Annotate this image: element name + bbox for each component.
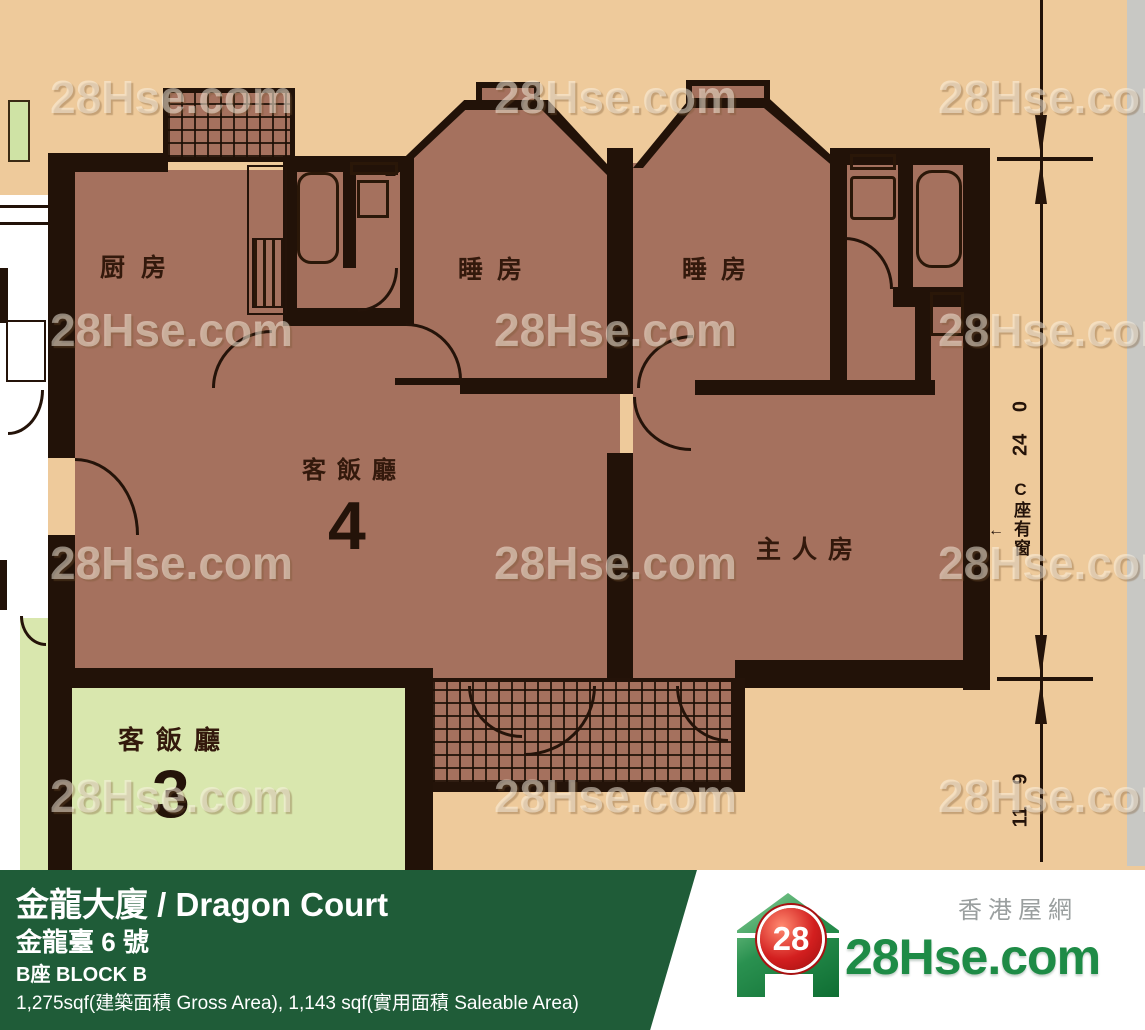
bathtub [297,172,339,264]
dimension-tick [997,157,1093,161]
master-bedroom-label: 主人房 [756,530,864,566]
adjacent-green-notch [20,618,48,870]
toilet [357,180,389,218]
living-dining-label: 客飯廳 [302,450,407,485]
master-bottom-wall [735,660,990,688]
logo-site-name-chinese: 香港屋網 [958,890,1078,925]
right-gray-strip [1127,0,1145,866]
left-outer-wall [48,535,75,690]
green-top-wall [58,668,418,688]
logo-house-door [765,974,813,997]
bedroom-left-label: 睡房 [458,250,536,286]
dimension-arrow [1035,682,1047,724]
lobby-wall-sliver [0,560,7,610]
mid-column [607,148,633,394]
window-note-arrow: ← [988,522,1004,540]
adjacent-green-sliver [8,100,30,162]
green-left-wall [48,690,72,870]
master-lobby-wall [915,307,931,395]
bathroom2-divider [898,150,913,292]
kitchen-label: 厨房 [100,248,182,284]
floorplan-page: 厨房 睡房 睡房 客飯廳 4 主人房 客飯廳 3 24 0 11 9 C座有窗 … [0,0,1145,1030]
dimension-lower-label: 11 9 [1010,766,1033,836]
dimension-arrow [1035,162,1047,204]
logo-site-name[interactable]: 28Hse.com [845,928,1100,986]
dimension-upper-label: 24 0 [1010,389,1033,469]
unit-interior-strip [633,640,745,680]
bedroom-right-label: 睡房 [682,250,760,286]
kitchen-top-wall [48,153,168,172]
kitchen-window-grille [168,93,290,157]
adjacent-living-room [72,688,415,870]
right-outer-wall [963,148,990,690]
bathroom1-right-wall [400,156,414,326]
toilet [850,176,896,220]
kitchen-sink [252,238,283,308]
building-title: 金龍大廈 / Dragon Court [16,878,388,926]
adjacent-living-label: 客飯廳 [118,720,232,757]
dimension-arrow [1035,635,1047,677]
green-right-wall [405,668,433,870]
bathroom1-bottom-wall [283,308,414,326]
block-label: B座 BLOCK B [16,958,147,987]
building-address: 金龍臺 6 號 [16,922,149,959]
wash-basin [350,162,398,175]
bathtub [916,170,962,268]
lobby-fixture [6,320,46,382]
window-note: C座有窗 [1008,480,1033,610]
dimension-arrow [1035,115,1047,157]
left-outer-wall [48,153,75,458]
lobby-line [0,222,48,225]
master-top-wall [695,380,935,395]
lobby-line [0,205,48,208]
dimension-tick [997,677,1093,681]
closet-fixture [930,292,964,336]
living-unit-number: 4 [328,492,366,560]
lobby-wall-sliver [0,268,8,323]
area-info: 1,275sqf(建築面積 Gross Area), 1,143 sqf(實用面… [16,988,579,1015]
logo-28-badge: 28 [760,908,822,970]
living-master-divider [607,453,633,688]
hall-wall [460,378,610,394]
wash-basin [850,154,896,170]
adjacent-unit-number: 3 [152,760,190,828]
footer-info-banner: 金龍大廈 / Dragon Court 金龍臺 6 號 B座 BLOCK B 1… [0,870,720,1030]
